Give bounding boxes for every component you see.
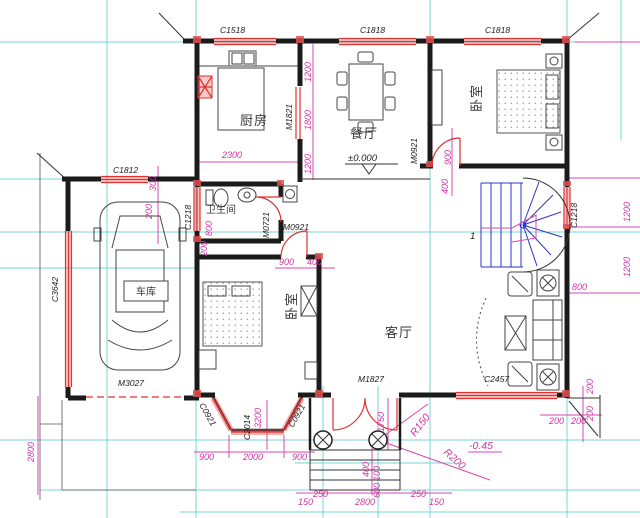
room-label-living: 客厅 — [385, 325, 413, 340]
door-label-m0721: M0721 — [261, 212, 271, 238]
floor-plan-drawing: 厨房 餐厅 卧室 卧室 客厅 卫生间 车库 C1518 C1818 C1818 … — [0, 0, 640, 518]
dim-corner-200c: 200 — [585, 379, 595, 395]
dim-bay-3200: 3200 — [253, 408, 263, 428]
dim-kitchen-2300: 2300 — [221, 150, 242, 160]
window-label-c1812: C1812 — [113, 165, 138, 175]
dim-garage-200: 200 — [144, 204, 154, 220]
dim-corner-200a: 200 — [548, 416, 564, 426]
door-m1821-kitchen — [296, 87, 300, 139]
stove-icon — [198, 76, 212, 98]
door-m0921-hall — [281, 231, 307, 257]
living-furniture — [476, 270, 562, 390]
dim-bed-900: 900 — [443, 150, 453, 165]
porch-column-right — [369, 431, 387, 449]
bedroom-bottom-furniture — [199, 282, 317, 379]
window-label-c1218-garage: C1218 — [183, 205, 193, 230]
door-label-m1827: M1827 — [358, 374, 384, 384]
radius-r200: R200 — [441, 446, 468, 472]
window-c1218-garage — [194, 187, 201, 231]
window-c3642 — [65, 231, 72, 387]
dim-right-1200a: 1200 — [622, 202, 632, 222]
window-label-c3642: C3642 — [50, 277, 60, 302]
dim-bath-800: 800 — [204, 221, 214, 236]
dim-bottom-250r: 250 — [410, 489, 426, 499]
dim-bath-200: 200 — [199, 241, 209, 257]
dim-garage-300: 300 — [148, 176, 158, 191]
window-c1818-bedroom — [464, 38, 541, 45]
dim-step-400: 400 — [361, 462, 371, 477]
dim-hall-400: 400 — [307, 257, 322, 267]
door-m1827-main — [333, 398, 397, 430]
room-label-bedroom-bottom: 卧室 — [284, 292, 299, 320]
room-label-garage: 车库 — [136, 285, 156, 298]
walls — [62, 38, 569, 450]
window-label-c1818-bedroom: C1818 — [485, 25, 510, 35]
dim-step-100: 100 — [372, 466, 382, 481]
dim-dining-1200: 1200 — [303, 62, 313, 82]
window-c1812 — [101, 176, 148, 183]
window-c2457 — [456, 392, 557, 399]
dim-hall-900: 900 — [279, 257, 294, 267]
window-label-c1518: C1518 — [220, 25, 245, 35]
window-label-c1218-stair: C1218 — [569, 203, 579, 228]
dim-left-2800: 2800 — [26, 442, 36, 463]
garage-car — [94, 202, 186, 370]
dim-bay-900l: 900 — [199, 452, 214, 462]
door-label-m3027: M3027 — [118, 378, 144, 388]
dim-bay-900r: 900 — [292, 452, 307, 462]
bathroom-fixtures — [206, 186, 297, 207]
dim-bottom-150l: 150 — [298, 497, 313, 507]
dim-right-1200b: 1200 — [622, 257, 632, 277]
dim-step-600: 600 — [372, 483, 382, 498]
dining-furniture — [337, 52, 395, 132]
floor-plan-page: 厨房 餐厅 卧室 卧室 客厅 卫生间 车库 C1518 C1818 C1818 … — [0, 0, 640, 518]
room-label-bedroom-top: 卧室 — [469, 84, 484, 112]
window-c1818-dining — [339, 38, 416, 45]
dim-corner-200b: 200 — [570, 416, 586, 426]
window-label-c2457: C2457 — [484, 374, 509, 384]
room-label-bathroom: 卫生间 — [206, 203, 236, 216]
dim-bottom-150r: 150 — [429, 497, 444, 507]
level-ground: ±0.000 — [348, 153, 378, 164]
dim-corner-200d: 200 — [585, 406, 595, 422]
level-porch: -0.45 — [469, 440, 493, 452]
dim-dining-1800: 1800 — [303, 110, 313, 130]
window-label-c1818-dining: C1818 — [360, 25, 385, 35]
dim-porch-1750: 1750 — [376, 412, 386, 432]
window-c0921-left — [213, 398, 231, 430]
spiral-stair — [481, 178, 570, 272]
level-symbols — [345, 164, 398, 174]
window-c1518 — [214, 38, 276, 45]
room-label-dining: 餐厅 — [350, 126, 378, 141]
room-label-kitchen: 厨房 — [240, 113, 268, 128]
dim-bed-400: 400 — [440, 179, 450, 194]
dim-dining-1200b: 1200 — [303, 154, 313, 174]
dim-bay-2000: 2000 — [242, 452, 263, 462]
dim-stair-800: 800 — [572, 282, 587, 292]
dim-bottom-250l: 250 — [312, 489, 328, 499]
porch-column-left — [314, 431, 332, 449]
window-label-c2014: C2014 — [242, 415, 252, 440]
door-label-m0921-bedroom: M0921 — [409, 138, 419, 164]
door-label-m1821: M1821 — [284, 104, 294, 130]
door-label-m0921-hall: M0921 — [283, 222, 309, 232]
stair-flight-number: 1 — [470, 231, 475, 242]
